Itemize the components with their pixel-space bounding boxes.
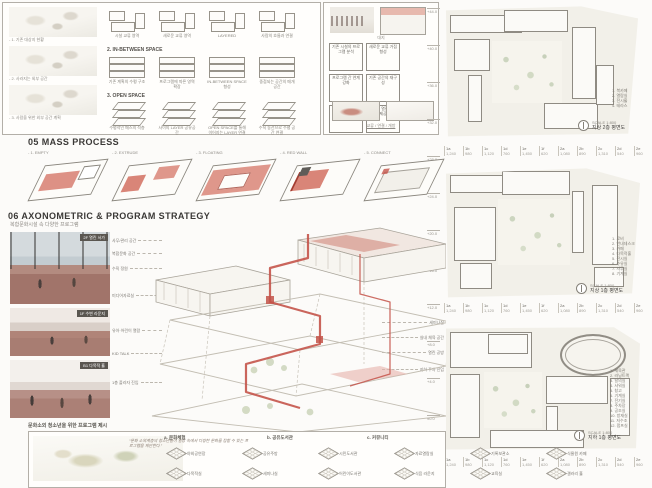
analysis-caption: 기존 계획의 수평 구조 xyxy=(107,79,147,84)
legend-item: 2d 540 xyxy=(615,457,634,467)
analysis-caption: IN-BETWEEN SPACE 형성 xyxy=(207,79,247,89)
site-sketch-caption: - 3. 사람을 위한 외부 공간 계획 xyxy=(9,115,97,120)
analysis-cell: 시설 교류 영역 xyxy=(107,9,147,38)
plan-caption: 지상 1층 평면도 xyxy=(590,288,623,294)
plan-note: 12. 펌프실 xyxy=(610,423,629,428)
section-06-subtitle: 복합문화시설 속 다양한 프로그램 xyxy=(10,222,79,228)
legend-value: 1,450 xyxy=(522,308,538,313)
legend-value: 980 xyxy=(465,308,481,313)
plan-b1-caption: SCALE 1:800 지하 1층 평면도 xyxy=(574,430,621,441)
analysis-cell: 사이의 LAYER 공유공간 xyxy=(157,101,197,135)
north-arrow-icon xyxy=(576,283,587,294)
axon-label-text: 미디어자료실 xyxy=(112,293,134,298)
program-item: 세미나실 xyxy=(245,466,291,481)
building-outline xyxy=(454,39,490,71)
analysis-diagram xyxy=(207,9,247,33)
legend-value: 540 xyxy=(617,151,633,156)
site-sketch-column: - 1. 기존 대상지 현황 - 2. 사라지는 외부 공간 - 3. 사람을 … xyxy=(9,7,97,120)
program-icons-row2: 다목적실 세미나실 어린이도서관 식음 라운지 xyxy=(169,466,595,481)
program-item: 자료열람실 xyxy=(397,446,443,461)
site-sketch-image xyxy=(9,46,97,76)
concept-mass-red xyxy=(332,101,380,121)
row3-header: 3. OPEN SPACE xyxy=(107,93,145,99)
mass-step: - 3. FLOATING xyxy=(196,150,274,197)
building-outline xyxy=(572,191,584,253)
site-sketch-image xyxy=(9,7,97,37)
legend-value: 1,310 xyxy=(598,462,614,467)
analysis-caption: OPEN SPACE를 통해 이어지는 LAYER 연결 xyxy=(207,125,247,135)
analysis-cell: IN-BETWEEN SPACE 형성 xyxy=(207,55,247,89)
flowchart-box: 프로그램 간 연계 강화 xyxy=(329,74,363,102)
program-item: 식물원 카페 xyxy=(549,446,595,461)
plan-note: 8. 기계실 xyxy=(612,271,635,276)
analysis-diagram xyxy=(157,55,197,79)
north-arrow-icon xyxy=(574,430,585,441)
program-item: 공유주방 xyxy=(245,446,291,461)
floor-plate-icon xyxy=(470,467,491,479)
render-caption: 2F 열린 서가 xyxy=(80,234,108,241)
analysis-cell: OPEN SPACE를 통해 이어지는 LAYER 연결 xyxy=(207,101,247,135)
section-06-title: 06 AXONOMETRIC & PROGRAM STRATEGY xyxy=(8,211,210,221)
floor-plate-icon xyxy=(394,467,415,479)
legend-value: 1,080 xyxy=(560,151,576,156)
legend-item: 1e 1,450 xyxy=(520,146,539,156)
legend-item: 1e 1,450 xyxy=(520,303,539,313)
floor-plate-icon xyxy=(470,447,491,459)
program-item: 기록보관소 xyxy=(473,446,519,461)
legend-value: 760 xyxy=(503,308,519,313)
analysis-caption: 시설 교류 영역 xyxy=(107,33,147,38)
site-sketch: - 2. 사라지는 외부 공간 xyxy=(9,46,97,81)
building-outline xyxy=(460,263,492,289)
legend-item: 2c 1,310 xyxy=(596,146,615,156)
legend-item: 2e 960 xyxy=(634,457,652,467)
program-item: 어린이도서관 xyxy=(321,466,367,481)
floor-plate-icon xyxy=(166,467,187,479)
plan-caption: 지하 1층 평면도 xyxy=(588,435,621,441)
program-item-label: 공유주방 xyxy=(263,451,278,456)
mass-step: - 4. RED WALL xyxy=(280,150,358,197)
legend-value: 1,120 xyxy=(484,308,500,313)
interior-render-2: 1F 수변 라운지 xyxy=(10,308,110,356)
row2-header: 2. IN-BETWEEN SPACE xyxy=(107,47,162,53)
flowchart-box: 기존 공간의 재구성 xyxy=(366,74,400,102)
concept-bottom-caption: 교류 / 연결 / 개방 xyxy=(324,123,438,128)
north-arrow-icon xyxy=(578,120,589,131)
analysis-row1-diagrams: 시설 교류 영역 새로운 교류 영역 LAYERED 사람의 흐름과 연결 xyxy=(107,9,297,38)
legend-item: 2c 1,310 xyxy=(596,303,615,313)
interior-render-3: B1 다목적 홀 xyxy=(10,360,110,418)
legend-value: 1,450 xyxy=(522,151,538,156)
building-outline xyxy=(488,334,528,354)
program-panel: “문화 소외계층의 청소년들이 일상 속에서 다양한 문화를 접할 수 있는 프… xyxy=(28,431,446,488)
program-item-label: 세미나실 xyxy=(263,471,278,476)
floor-plan-2f xyxy=(444,5,640,139)
panel-concept-flow: 대지 기존 시설의 프로그램 분석 새로운 교류 거점 형성 프로그램 간 연계… xyxy=(323,2,439,135)
flowchart-box: 새로운 교류 거점 형성 xyxy=(366,43,400,71)
building-outline xyxy=(504,10,568,32)
program-item-label: 갤러리 홀 xyxy=(567,471,583,476)
legend-item: 1b 980 xyxy=(463,146,482,156)
area-legend-strip: 1a 1,240 1b 980 1c 1,120 1d 760 1e 1,450 xyxy=(444,303,652,313)
program-item: 다목적실 xyxy=(169,466,215,481)
site-sketch: - 1. 기존 대상지 현황 xyxy=(9,7,97,42)
legend-value: 620 xyxy=(541,151,557,156)
program-item-label: 어린이도서관 xyxy=(339,471,361,476)
legend-value: 620 xyxy=(541,308,557,313)
analysis-cell: 새로운 교류 영역 xyxy=(157,9,197,38)
courtyard xyxy=(492,41,562,103)
axon-label-text: KID TALK xyxy=(112,351,129,356)
legend-item: 2a 1,080 xyxy=(558,303,577,313)
program-icons-row1: 야외공연장 공유주방 시민도서관 자료열람실 xyxy=(169,446,595,461)
legend-item: 1a 1,240 xyxy=(444,146,463,156)
analysis-diagram xyxy=(157,101,197,125)
floor-plate-icon xyxy=(546,467,567,479)
level-mark: +44.0 xyxy=(427,8,440,14)
courtyard xyxy=(484,372,542,428)
concept-axon-caption: 대지 xyxy=(324,35,438,40)
level-mark: +36.0 xyxy=(427,82,440,88)
analysis-diagram xyxy=(107,101,147,125)
analysis-diagram xyxy=(257,55,297,79)
panel-space-analysis: - 1. 기존 대상지 현황 - 2. 사라지는 외부 공간 - 3. 사람을 … xyxy=(2,2,321,135)
program-item-label: 식물원 카페 xyxy=(567,451,587,456)
flowchart-box: 기존 시설의 프로그램 분석 xyxy=(329,43,363,71)
legend-value: 1,080 xyxy=(560,308,576,313)
building-outline xyxy=(502,171,570,195)
building-outline xyxy=(450,374,480,438)
program-item-label: 야외공연장 xyxy=(187,451,205,456)
site-sketch-image xyxy=(9,85,97,115)
mass-step: - 5. CONNECT xyxy=(364,150,442,197)
plan-2f-notes: 1. 북카페2. 열람실3. 전시홀4. 테라스 xyxy=(612,88,628,108)
building-outline xyxy=(454,207,496,261)
mass-step-label: - 1. EMPTY xyxy=(28,150,106,155)
level-mark: +32.0 xyxy=(427,119,440,125)
building-outline xyxy=(468,75,482,122)
legend-item: 1d 760 xyxy=(501,303,520,313)
legend-item: 2e 960 xyxy=(634,303,652,313)
legend-item: 2b 890 xyxy=(577,146,596,156)
mass-step-diagram xyxy=(111,159,192,202)
floor-plate-icon xyxy=(546,447,567,459)
legend-value: 890 xyxy=(579,308,595,313)
legend-value: 960 xyxy=(636,151,652,156)
legend-value: 760 xyxy=(503,151,519,156)
analysis-cell: 사람의 흐름과 연결 xyxy=(257,9,297,38)
plan-2f-caption: SCALE 1:800 지상 2층 평면도 xyxy=(578,120,625,131)
floor-plan-1f xyxy=(444,167,642,300)
analysis-caption: 사람의 흐름과 연결 xyxy=(257,33,297,38)
program-group-c: c. 커뮤니티 xyxy=(367,435,389,441)
concept-mass-pair xyxy=(332,101,434,121)
analysis-row2-diagrams: 기존 계획의 수평 구조 프로그램에 따른 영역 확장 IN-BETWEEN S… xyxy=(107,55,297,89)
analysis-row3-diagrams: 수평적인 매스의 적층 사이의 LAYER 공유공간 OPEN SPACE를 통… xyxy=(107,101,297,135)
program-item: 교육실 xyxy=(473,466,519,481)
program-item-label: 식음 라운지 xyxy=(415,471,435,476)
analysis-diagram xyxy=(107,55,147,79)
analysis-diagram xyxy=(207,55,247,79)
legend-item: 1d 760 xyxy=(501,146,520,156)
mass-step: - 2. EXTRUDE xyxy=(112,150,190,197)
legend-value: 540 xyxy=(617,462,633,467)
analysis-cell: LAYERED xyxy=(207,9,247,38)
legend-item: 1b 980 xyxy=(463,303,482,313)
program-item-label: 기록보관소 xyxy=(491,451,509,456)
mass-step-label: - 5. CONNECT xyxy=(364,150,442,155)
legend-value: 890 xyxy=(579,151,595,156)
axon-label-text: 수직 정원 xyxy=(112,266,128,271)
analysis-caption: LAYERED xyxy=(207,33,247,38)
legend-value: 1,240 xyxy=(446,308,462,313)
mass-step-label: - 4. RED WALL xyxy=(280,150,358,155)
section-05-title: 05 MASS PROCESS xyxy=(28,137,119,147)
legend-value: 1,310 xyxy=(598,308,614,313)
mass-process-row: - 1. EMPTY - 2. EXTRUDE - 3. FLOATING - … xyxy=(28,150,442,197)
legend-value: 980 xyxy=(465,151,481,156)
analysis-caption: 새로운 교류 영역 xyxy=(157,33,197,38)
analysis-diagram xyxy=(207,101,247,125)
analysis-caption: 수직 동선으로 수평 공간 연결 xyxy=(257,125,297,135)
mass-step-diagram xyxy=(363,159,444,202)
floor-plate-icon xyxy=(318,447,339,459)
analysis-caption: 프로그램에 따른 영역 확장 xyxy=(157,79,197,89)
program-item: 갤러리 홀 xyxy=(549,466,595,481)
building-outline xyxy=(546,376,608,404)
analysis-caption: 중첩되는 공간의 매개 공간 xyxy=(257,79,297,89)
plan-1f-caption: SCALE 1:800 지상 1층 평면도 xyxy=(576,283,623,294)
site-sketch: - 3. 사람을 위한 외부 공간 계획 xyxy=(9,85,97,120)
program-item-label: 교육실 xyxy=(491,471,502,476)
analysis-diagram xyxy=(257,101,297,125)
legend-value: 1,240 xyxy=(446,151,462,156)
program-item-label: 자료열람실 xyxy=(415,451,433,456)
analysis-diagram xyxy=(257,9,297,33)
axon-label-text: 복합문화 공간 xyxy=(112,251,135,256)
concept-axon-pair xyxy=(330,7,426,35)
site-sketch-caption: - 1. 기존 대상지 현황 xyxy=(9,37,97,42)
program-item: 식음 라운지 xyxy=(397,466,443,481)
program-group-b: b. 공유도서관 xyxy=(267,435,293,441)
analysis-cell: 기존 계획의 수평 구조 xyxy=(107,55,147,89)
analysis-cell: 수직 동선으로 수평 공간 연결 xyxy=(257,101,297,135)
analysis-cell: 중첩되는 공간의 매개 공간 xyxy=(257,55,297,89)
mass-step-label: - 3. FLOATING xyxy=(196,150,274,155)
area-legend-strip: 1a 1,240 1b 980 1c 1,120 1d 760 1e 1,450 xyxy=(444,146,652,156)
presentation-board: - 1. 기존 대상지 현황 - 2. 사라지는 외부 공간 - 3. 사람을 … xyxy=(0,0,652,488)
legend-item: 2d 540 xyxy=(615,303,634,313)
concept-axon-proposed xyxy=(380,7,426,35)
program-caption: 문화소외 청소년을 위한 프로그램 제시 xyxy=(28,423,107,429)
legend-item: 1c 1,120 xyxy=(482,303,501,313)
axon-label-text: 유아·어린이 열람 xyxy=(112,328,140,333)
interior-render-1: 2F 열린 서가 xyxy=(10,232,110,304)
floor-plate-icon xyxy=(166,447,187,459)
legend-item: 2b 890 xyxy=(577,303,596,313)
legend-item: 1f 620 xyxy=(539,146,558,156)
building-outline xyxy=(572,27,596,99)
floor-plate-icon xyxy=(394,447,415,459)
render-caption: B1 다목적 홀 xyxy=(80,362,108,369)
legend-value: 1,310 xyxy=(598,151,614,156)
legend-value: 540 xyxy=(617,308,633,313)
legend-value: 960 xyxy=(636,308,652,313)
axonometric-diagram xyxy=(150,224,446,434)
axon-label-text: 사무/관리 공간 xyxy=(112,238,136,243)
legend-item: 1a 1,240 xyxy=(444,303,463,313)
program-item: 시민도서관 xyxy=(321,446,367,461)
legend-value: 1,120 xyxy=(484,151,500,156)
program-item: 야외공연장 xyxy=(169,446,215,461)
legend-value: 960 xyxy=(636,462,652,467)
courtyard xyxy=(498,199,570,265)
analysis-diagram xyxy=(157,9,197,33)
analysis-diagram xyxy=(107,9,147,33)
render-caption: 1F 수변 라운지 xyxy=(77,310,108,317)
program-item-label: 시민도서관 xyxy=(339,451,357,456)
legend-item: 1f 620 xyxy=(539,303,558,313)
mass-step-diagram xyxy=(279,159,360,202)
plan-b1-notes: 1. 체육관2. 러닝트랙3. 탈의실4. 샤워실5. 창고6. 기계실7. 전… xyxy=(610,368,629,428)
plan-note: 4. 테라스 xyxy=(612,103,628,108)
level-mark: +40.0 xyxy=(427,45,440,51)
legend-item: 2e 960 xyxy=(634,146,652,156)
legend-item: 2c 1,310 xyxy=(596,457,615,467)
floor-plate-icon xyxy=(242,467,263,479)
analysis-cell: 수평적인 매스의 적층 xyxy=(107,101,147,135)
plan-1f-notes: 1. 로비2. 안내데스크3. 카페4. 다목적홀5. 전시실6. 수유실7. … xyxy=(612,236,635,276)
legend-item: 2a 1,080 xyxy=(558,146,577,156)
mass-step: - 1. EMPTY xyxy=(28,150,106,197)
legend-item: 2d 540 xyxy=(615,146,634,156)
program-item-label: 다목적실 xyxy=(187,471,202,476)
mass-step-diagram xyxy=(195,159,276,202)
mass-step-label: - 2. EXTRUDE xyxy=(112,150,190,155)
floor-plate-icon xyxy=(318,467,339,479)
mass-step-diagram xyxy=(27,159,108,202)
analysis-cell: 프로그램에 따른 영역 확장 xyxy=(157,55,197,89)
plan-caption: 지상 2층 평면도 xyxy=(592,125,625,131)
program-group-a: a. 문화체험 xyxy=(164,435,186,441)
site-sketch-caption: - 2. 사라지는 외부 공간 xyxy=(9,76,97,81)
analysis-caption: 사이의 LAYER 공유공간 xyxy=(157,125,197,135)
floor-plate-icon xyxy=(242,447,263,459)
legend-item: 1c 1,120 xyxy=(482,146,501,156)
axon-label-text: 1층 플라자 진입 xyxy=(112,380,139,385)
concept-axon-existing xyxy=(330,7,374,33)
